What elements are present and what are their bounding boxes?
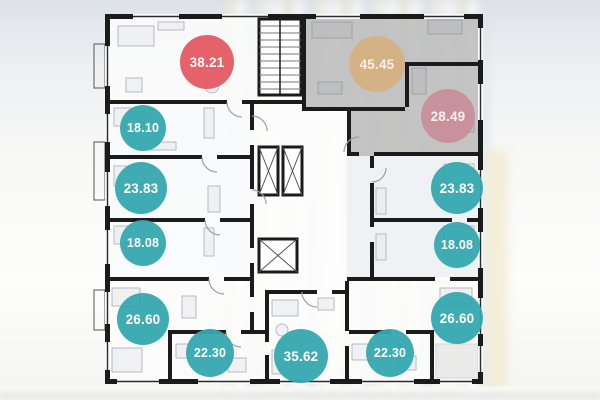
area-badge-value: 38.21 <box>190 55 225 70</box>
area-badge-value: 35.62 <box>284 349 319 364</box>
area-badge[interactable]: 18.08 <box>120 220 166 266</box>
balcony-railings <box>94 44 105 330</box>
area-badge-value: 18.08 <box>127 236 159 250</box>
area-badge[interactable]: 18.10 <box>120 105 166 151</box>
area-badge-value: 28.49 <box>431 109 466 124</box>
area-badge[interactable]: 23.83 <box>115 162 167 214</box>
area-badge-value: 22.30 <box>194 346 226 360</box>
area-badge[interactable]: 22.30 <box>366 329 414 377</box>
area-badge[interactable]: 38.21 <box>180 35 234 89</box>
area-badge-value: 26.60 <box>440 311 475 326</box>
area-badge-value: 18.10 <box>127 121 159 135</box>
area-badge-value: 23.83 <box>440 181 475 196</box>
area-badge[interactable]: 18.08 <box>434 222 480 268</box>
area-badge[interactable]: 23.83 <box>431 162 483 214</box>
area-badge[interactable]: 26.60 <box>117 293 169 345</box>
floor-plan-view: 38.21 45.45 28.49 18.10 23.83 18.08 26.6… <box>0 0 600 400</box>
area-badge-value: 22.30 <box>374 346 406 360</box>
area-badge[interactable]: 22.30 <box>186 329 234 377</box>
area-badge[interactable]: 35.62 <box>274 329 328 383</box>
area-badge[interactable]: 45.45 <box>349 36 405 92</box>
area-badge-value: 45.45 <box>360 57 395 72</box>
area-badge[interactable]: 26.60 <box>431 292 483 344</box>
area-badge-value: 26.60 <box>126 312 161 327</box>
area-badge[interactable]: 28.49 <box>421 89 475 143</box>
area-badge-value: 18.08 <box>441 238 473 252</box>
area-badge-value: 23.83 <box>124 181 159 196</box>
